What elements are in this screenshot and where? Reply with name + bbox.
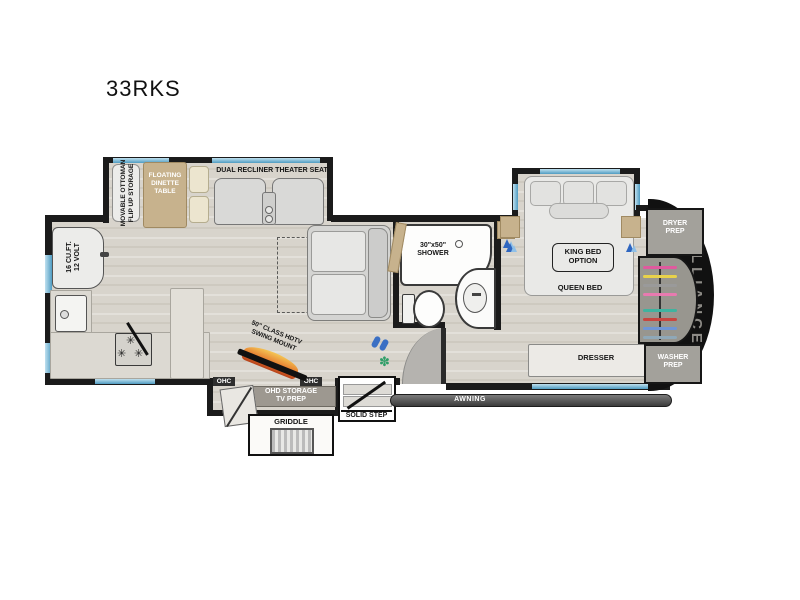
hanger-icon [643,284,677,287]
shower-label: 30"x50" SHOWER [406,242,460,259]
hanger-icon [643,266,677,269]
theater-seat-right [272,178,324,225]
wall-top-center [331,215,514,222]
page-title: 33RKS [106,76,181,102]
window-kitchen [95,379,155,384]
wardrobe [638,256,698,344]
king-option-label: KING BED OPTION [552,247,614,265]
cooktop: ✳ ✳ ✳ [115,333,152,366]
entry-door-panel [441,328,446,384]
floorplan-canvas: 33RKS MOVABLE OTTOMAN FLIP UP STORAGE FL… [0,0,800,600]
hanger-icon [643,293,677,296]
sofa-cushion-2 [311,274,366,315]
griddle-label: GRIDDLE [250,417,332,426]
toilet-bowl [413,290,445,328]
washer-prep-box: WASHER PREP [644,344,702,384]
fridge-label-wrap: 16 CU.FT. 12 VOLT [66,212,90,302]
window-slide-top-2 [212,158,320,163]
ohc-left-label: OHC [213,377,235,386]
ottoman-label: MOVABLE OTTOMAN FLIP UP STORAGE [120,148,136,238]
nightstand-left [500,216,520,238]
plant-icon: ✽ [379,354,390,370]
fridge-handle [100,252,109,257]
dinette-chair-1 [189,166,209,193]
shoes-icon [373,336,393,352]
shower-head-icon [455,240,463,248]
dinette-label: FLOATING DINETTE TABLE [143,172,187,195]
dinette-chair-2 [189,196,209,223]
window-dresser [532,384,656,389]
awning-bar [390,394,672,407]
fridge-label: 16 CU.FT. 12 VOLT [66,212,83,302]
ohd-storage-label: OHD STORAGE TV PREP [246,386,336,407]
bed-bolster [549,203,609,219]
griddle-icon [270,428,314,454]
solid-step-box: SOLID STEP [338,376,396,422]
window-bedslide-leftside [513,184,518,210]
wall-slide-left [103,157,109,223]
faucet-icon [60,310,69,319]
hanger-icon [643,318,677,321]
hanger-icon [643,327,677,330]
hanger-icon [643,275,677,278]
griddle-box: GRIDDLE [248,414,334,456]
window-left-1 [45,255,52,293]
theater-seat-label: DUAL RECLINER THEATER SEAT [213,167,331,175]
vanity-faucet [472,293,481,296]
burner-icon-2: ✳ [117,347,126,360]
solid-step-label: SOLID STEP [341,410,392,420]
hanger-icon [643,309,677,312]
kitchen-island [170,288,204,379]
hanger-icon [643,336,677,339]
sofa-cushion-1 [311,231,366,272]
window-bedslide-top [540,169,620,174]
vanity-sink [463,283,487,313]
cupholder-1 [265,206,273,214]
awning-label: AWNING [440,396,500,404]
nightstand-right [621,216,641,238]
sofa-back [368,228,388,318]
cupholder-2 [265,215,273,223]
dryer-prep-box: DRYER PREP [646,208,704,256]
theater-seat-left [214,178,266,225]
lamp-icon-right [626,243,634,252]
lamp-icon-left [506,243,514,252]
queen-bed-label: QUEEN BED [540,283,620,292]
